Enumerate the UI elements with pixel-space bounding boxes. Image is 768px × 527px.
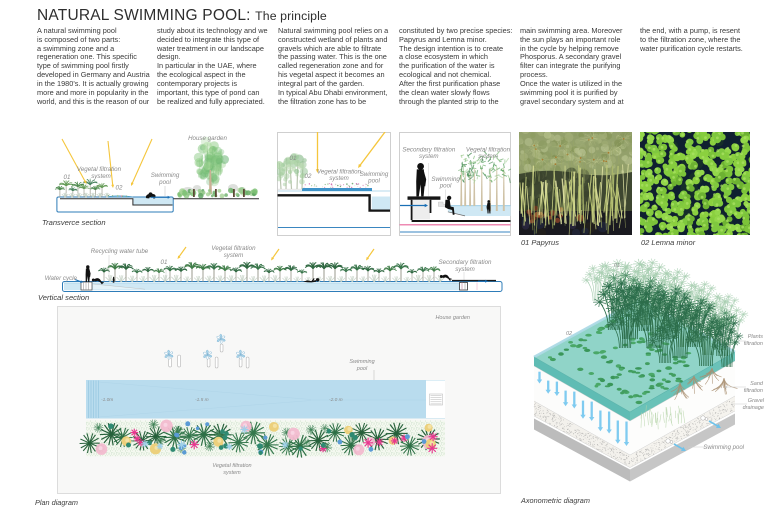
svg-text:Vegetal filtration: Vegetal filtration: [77, 166, 122, 173]
svg-text:01: 01: [614, 263, 620, 269]
svg-text:Water cycle: Water cycle: [45, 275, 78, 282]
svg-text:-1.5 m: -1.5 m: [195, 397, 209, 403]
svg-text:House garden: House garden: [188, 135, 227, 142]
svg-text:-1.0m: -1.0m: [101, 397, 113, 403]
svg-text:Gravel: Gravel: [748, 398, 765, 404]
svg-text:system: system: [419, 153, 439, 160]
svg-text:02: 02: [566, 331, 572, 337]
svg-text:Swimming pool: Swimming pool: [703, 445, 744, 451]
svg-text:Swimming: Swimming: [349, 359, 375, 365]
svg-text:Recycling water tube: Recycling water tube: [91, 248, 149, 255]
svg-text:02: 02: [116, 185, 123, 192]
svg-text:system: system: [91, 173, 111, 180]
svg-text:Plants: Plants: [748, 334, 764, 340]
svg-text:Swimming: Swimming: [151, 172, 180, 179]
svg-text:Vegetal filtration: Vegetal filtration: [212, 463, 251, 469]
svg-text:pool: pool: [356, 366, 368, 372]
svg-text:pool: pool: [367, 177, 380, 184]
svg-text:drainage: drainage: [743, 405, 764, 411]
svg-text:system: system: [478, 153, 498, 160]
svg-text:01: 01: [290, 155, 297, 162]
svg-text:01: 01: [64, 174, 71, 181]
svg-text:system: system: [223, 470, 241, 476]
svg-text:filtration: filtration: [744, 341, 763, 347]
svg-text:system: system: [455, 266, 475, 273]
svg-text:Sand: Sand: [750, 381, 764, 387]
svg-text:filtration: filtration: [744, 388, 763, 394]
svg-text:02: 02: [305, 173, 312, 180]
svg-text:pool: pool: [439, 183, 452, 190]
svg-text:system: system: [224, 252, 244, 259]
svg-text:House garden: House garden: [435, 315, 470, 321]
svg-text:01: 01: [161, 259, 168, 266]
svg-text:Vegetal filtration: Vegetal filtration: [211, 245, 256, 252]
svg-text:Secondary filtration: Secondary filtration: [439, 259, 493, 266]
svg-text:pool: pool: [158, 179, 171, 186]
svg-text:-2.0 m: -2.0 m: [329, 397, 343, 403]
svg-text:system: system: [329, 175, 349, 182]
